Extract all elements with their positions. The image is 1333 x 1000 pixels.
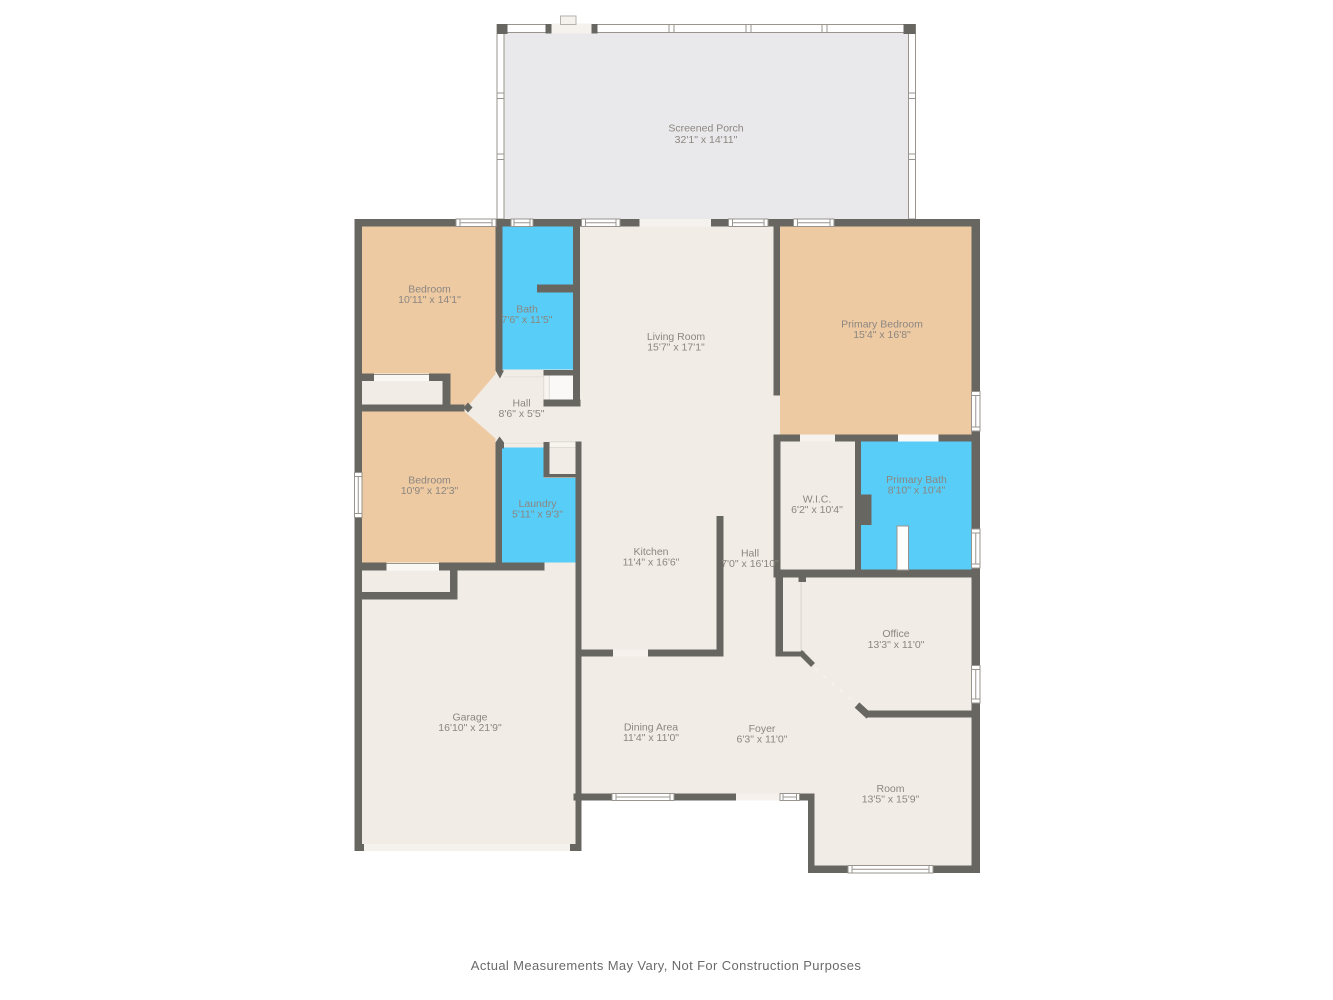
svg-text:6'2" x 10'4": 6'2" x 10'4" [791, 504, 843, 516]
svg-text:13'3" x 11'0": 13'3" x 11'0" [868, 639, 925, 651]
svg-text:6'3" x 11'0": 6'3" x 11'0" [737, 734, 788, 746]
svg-text:5'11" x 9'3": 5'11" x 9'3" [512, 509, 563, 521]
svg-text:8'6" x 5'5": 8'6" x 5'5" [499, 408, 545, 420]
svg-text:13'5" x 15'9": 13'5" x 15'9" [862, 794, 920, 806]
svg-text:8'10" x 10'4": 8'10" x 10'4" [888, 485, 946, 497]
svg-text:10'9" x 12'3": 10'9" x 12'3" [401, 485, 459, 497]
svg-text:Actual Measurements May Vary,: Actual Measurements May Vary, Not For Co… [471, 958, 862, 973]
svg-text:11'4" x 11'0": 11'4" x 11'0" [623, 732, 679, 744]
svg-text:Screened Porch: Screened Porch [668, 123, 743, 135]
svg-text:7'6" x 11'5": 7'6" x 11'5" [502, 314, 553, 326]
svg-text:15'4" x 16'8": 15'4" x 16'8" [853, 329, 911, 341]
svg-text:7'0" x 16'10": 7'0" x 16'10" [721, 558, 779, 570]
svg-text:11'4" x 16'6": 11'4" x 16'6" [623, 557, 680, 569]
svg-text:15'7" x 17'1": 15'7" x 17'1" [647, 342, 705, 354]
svg-text:16'10" x 21'9": 16'10" x 21'9" [438, 722, 502, 734]
svg-text:10'11" x 14'1": 10'11" x 14'1" [398, 294, 461, 306]
svg-text:32'1" x 14'11": 32'1" x 14'11" [675, 134, 738, 146]
